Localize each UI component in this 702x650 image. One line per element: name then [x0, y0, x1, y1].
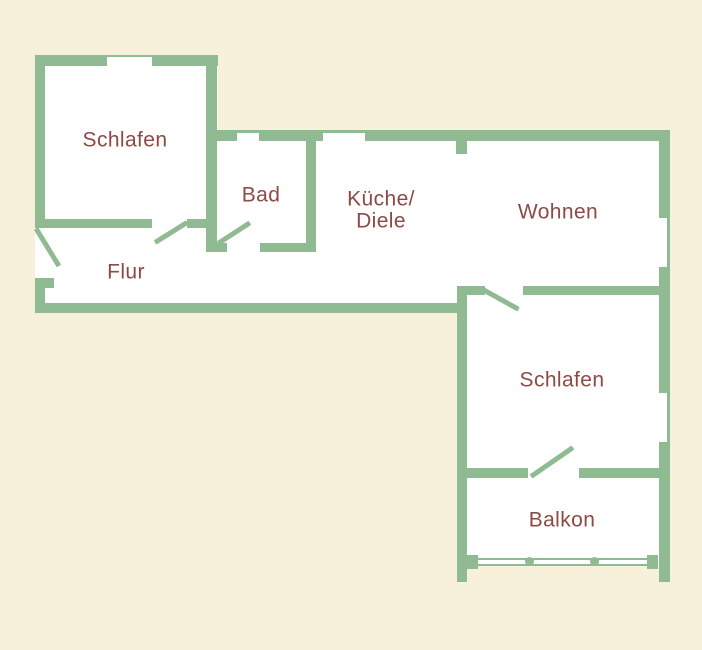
window-schlafen1 — [107, 57, 152, 66]
wall-bad-right — [306, 130, 316, 252]
wall-flur-door-segment — [187, 219, 207, 228]
wall-schlafen1-bottom — [35, 219, 152, 228]
wall-outer-right — [659, 130, 670, 582]
wall-kueche-wohnen-stub — [456, 141, 467, 154]
wall-outer-left-upper — [35, 55, 45, 228]
room-label-kueche-line2: Diele — [347, 210, 415, 232]
wall-mid-vertical — [457, 286, 467, 582]
railing-line-top — [478, 558, 647, 560]
wall-schlafen2-bottom-right — [579, 468, 670, 478]
wall-entry-jamb — [35, 278, 54, 288]
wall-schlafen1-right — [206, 55, 217, 252]
window-kueche — [323, 133, 365, 141]
railing-dot-left — [525, 557, 534, 566]
railing-dot-right — [590, 557, 599, 566]
railing-post-right — [647, 555, 658, 569]
railing-post-left — [467, 555, 478, 569]
room-label-wohnen: Wohnen — [518, 201, 598, 223]
room-label-flur: Flur — [107, 261, 145, 283]
room-label-schlafen-1: Schlafen — [83, 129, 168, 151]
wall-wohnen-bottom-right — [523, 286, 670, 295]
room-label-schlafen-2: Schlafen — [520, 369, 605, 391]
window-schlafen2 — [659, 393, 667, 442]
room-label-kueche-line1: Küche/ — [347, 189, 415, 211]
railing-line-bottom — [478, 564, 647, 566]
wall-schlafen2-bottom-left — [457, 468, 528, 478]
room-label-bad: Bad — [242, 184, 281, 206]
wall-bad-bottom — [260, 243, 316, 252]
window-wohnen — [659, 218, 667, 267]
wall-main-top — [217, 130, 670, 141]
window-bad — [237, 133, 259, 141]
room-label-kueche-diele: Küche/ Diele — [347, 189, 415, 232]
room-label-balkon: Balkon — [529, 509, 596, 531]
wall-flur-bottom-outer — [35, 303, 457, 313]
floor-plan: Schlafen Bad Küche/ Diele Wohnen Flur Sc… — [0, 0, 702, 650]
